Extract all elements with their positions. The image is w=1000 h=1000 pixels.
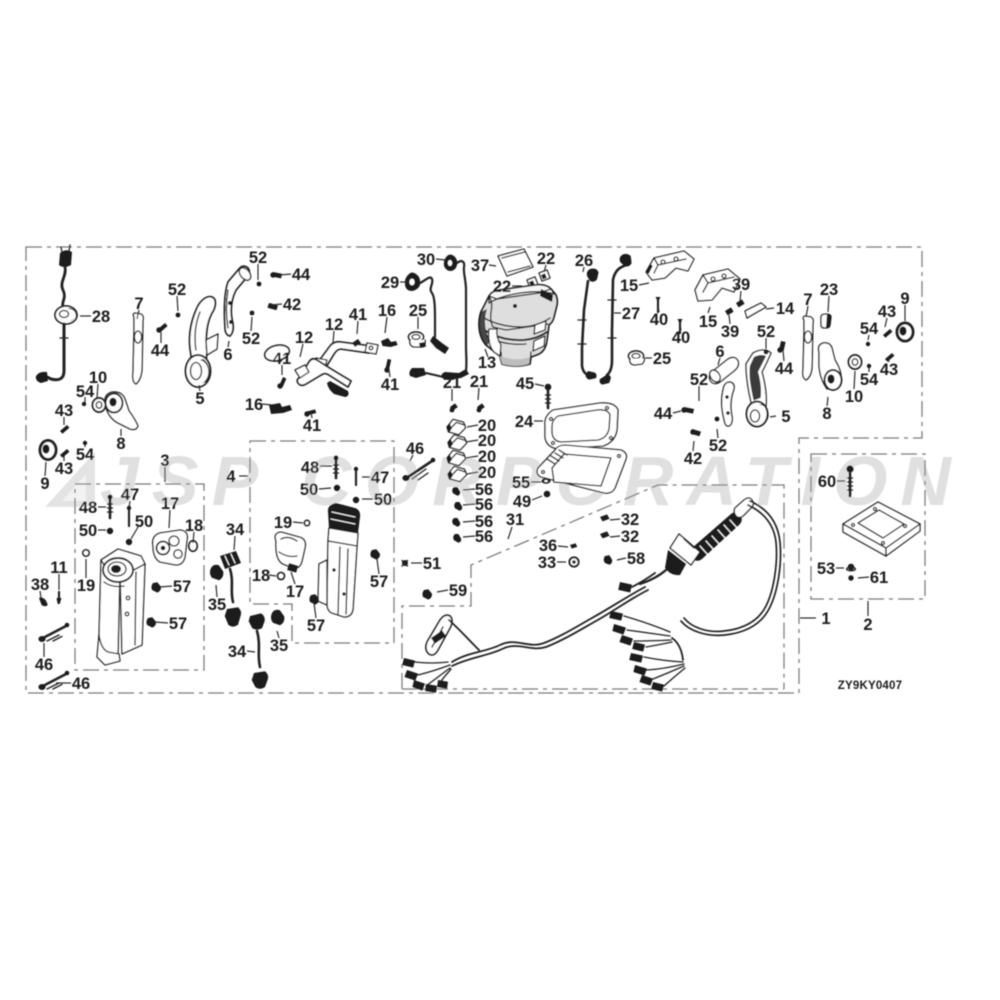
svg-text:54: 54 — [860, 320, 879, 338]
svg-text:15: 15 — [620, 277, 638, 295]
svg-text:12: 12 — [325, 316, 343, 334]
svg-text:54: 54 — [76, 446, 95, 464]
svg-text:6: 6 — [715, 343, 724, 361]
svg-text:35: 35 — [208, 596, 226, 614]
svg-text:7: 7 — [803, 291, 812, 309]
svg-text:55: 55 — [512, 474, 530, 492]
svg-text:60: 60 — [818, 473, 836, 491]
svg-text:50: 50 — [79, 522, 97, 540]
svg-text:25: 25 — [409, 302, 427, 320]
svg-text:51: 51 — [423, 555, 441, 573]
svg-text:4: 4 — [226, 468, 236, 486]
svg-text:42: 42 — [283, 296, 301, 314]
svg-text:25: 25 — [653, 350, 671, 368]
svg-text:37: 37 — [471, 257, 489, 275]
svg-text:22: 22 — [537, 250, 555, 268]
svg-text:40: 40 — [650, 311, 668, 329]
svg-text:27: 27 — [622, 305, 640, 323]
svg-text:20: 20 — [478, 464, 496, 482]
svg-text:57: 57 — [173, 578, 191, 596]
svg-text:32: 32 — [621, 528, 639, 546]
svg-text:49: 49 — [513, 493, 531, 511]
svg-text:43: 43 — [878, 303, 896, 321]
svg-text:44: 44 — [292, 266, 311, 284]
svg-text:15: 15 — [699, 313, 717, 331]
svg-text:50: 50 — [300, 481, 318, 499]
svg-text:46: 46 — [72, 675, 90, 693]
svg-text:47: 47 — [121, 486, 139, 504]
svg-text:9: 9 — [40, 475, 49, 493]
svg-text:48: 48 — [79, 499, 97, 517]
svg-text:8: 8 — [822, 405, 831, 423]
svg-text:52: 52 — [168, 281, 186, 299]
svg-text:44: 44 — [151, 342, 170, 360]
svg-text:21: 21 — [470, 373, 488, 391]
svg-text:9: 9 — [900, 290, 909, 308]
svg-text:52: 52 — [690, 371, 708, 389]
svg-text:16: 16 — [378, 302, 396, 320]
svg-text:8: 8 — [116, 435, 125, 453]
svg-text:41: 41 — [303, 417, 321, 435]
svg-text:34: 34 — [228, 643, 247, 661]
svg-text:1: 1 — [821, 610, 830, 628]
svg-text:52: 52 — [757, 323, 775, 341]
svg-text:46: 46 — [406, 440, 424, 458]
svg-text:29: 29 — [381, 274, 399, 292]
svg-text:43: 43 — [55, 402, 73, 420]
svg-text:26: 26 — [575, 252, 593, 270]
svg-text:18: 18 — [185, 517, 203, 535]
svg-text:54: 54 — [860, 371, 879, 389]
svg-text:22: 22 — [493, 278, 511, 296]
svg-text:19: 19 — [274, 514, 292, 532]
svg-text:16: 16 — [245, 396, 263, 414]
svg-text:13: 13 — [478, 354, 496, 372]
svg-text:24: 24 — [515, 413, 534, 431]
svg-text:28: 28 — [92, 308, 110, 326]
svg-text:34: 34 — [226, 521, 245, 539]
svg-text:19: 19 — [77, 577, 95, 595]
svg-text:61: 61 — [870, 569, 888, 587]
svg-text:57: 57 — [370, 573, 388, 591]
svg-text:50: 50 — [374, 491, 392, 509]
svg-text:6: 6 — [223, 346, 232, 364]
svg-text:43: 43 — [55, 460, 73, 478]
svg-text:57: 57 — [169, 615, 187, 633]
svg-text:12: 12 — [295, 329, 313, 347]
svg-text:30: 30 — [417, 251, 435, 269]
svg-text:3: 3 — [160, 452, 169, 470]
svg-text:5: 5 — [781, 408, 790, 426]
svg-text:56: 56 — [475, 528, 493, 546]
svg-text:39: 39 — [732, 276, 750, 294]
svg-text:52: 52 — [242, 330, 260, 348]
svg-text:46: 46 — [35, 656, 53, 674]
svg-text:52: 52 — [249, 249, 267, 267]
svg-text:53: 53 — [817, 560, 835, 578]
svg-text:41: 41 — [349, 306, 367, 324]
svg-text:23: 23 — [820, 281, 838, 299]
svg-text:5: 5 — [195, 390, 204, 408]
svg-text:56: 56 — [475, 496, 493, 514]
svg-text:ZY9KY0407: ZY9KY0407 — [838, 680, 902, 692]
svg-text:32: 32 — [621, 511, 639, 529]
svg-text:50: 50 — [135, 513, 153, 531]
svg-text:17: 17 — [286, 583, 304, 601]
svg-text:7: 7 — [134, 295, 143, 313]
svg-text:39: 39 — [721, 323, 739, 341]
svg-text:14: 14 — [776, 300, 795, 318]
svg-text:41: 41 — [273, 350, 291, 368]
svg-text:43: 43 — [880, 361, 898, 379]
svg-text:31: 31 — [506, 511, 524, 529]
svg-text:47: 47 — [371, 469, 389, 487]
svg-text:17: 17 — [161, 495, 179, 513]
svg-text:59: 59 — [449, 582, 467, 600]
svg-text:41: 41 — [381, 376, 399, 394]
svg-text:52: 52 — [709, 437, 727, 455]
svg-text:35: 35 — [270, 637, 288, 655]
svg-text:10: 10 — [845, 388, 863, 406]
svg-text:42: 42 — [684, 450, 702, 468]
svg-text:36: 36 — [539, 537, 557, 555]
svg-text:58: 58 — [627, 550, 645, 568]
svg-text:44: 44 — [775, 360, 794, 378]
svg-text:2: 2 — [863, 616, 872, 634]
svg-text:18: 18 — [252, 567, 270, 585]
svg-text:48: 48 — [301, 459, 319, 477]
svg-text:45: 45 — [516, 375, 534, 393]
svg-text:44: 44 — [654, 405, 673, 423]
svg-text:38: 38 — [31, 576, 49, 594]
svg-text:40: 40 — [672, 329, 690, 347]
svg-text:11: 11 — [50, 559, 67, 577]
svg-text:33: 33 — [538, 554, 556, 572]
svg-text:21: 21 — [443, 374, 461, 392]
svg-text:57: 57 — [307, 617, 325, 635]
svg-text:54: 54 — [76, 383, 95, 401]
